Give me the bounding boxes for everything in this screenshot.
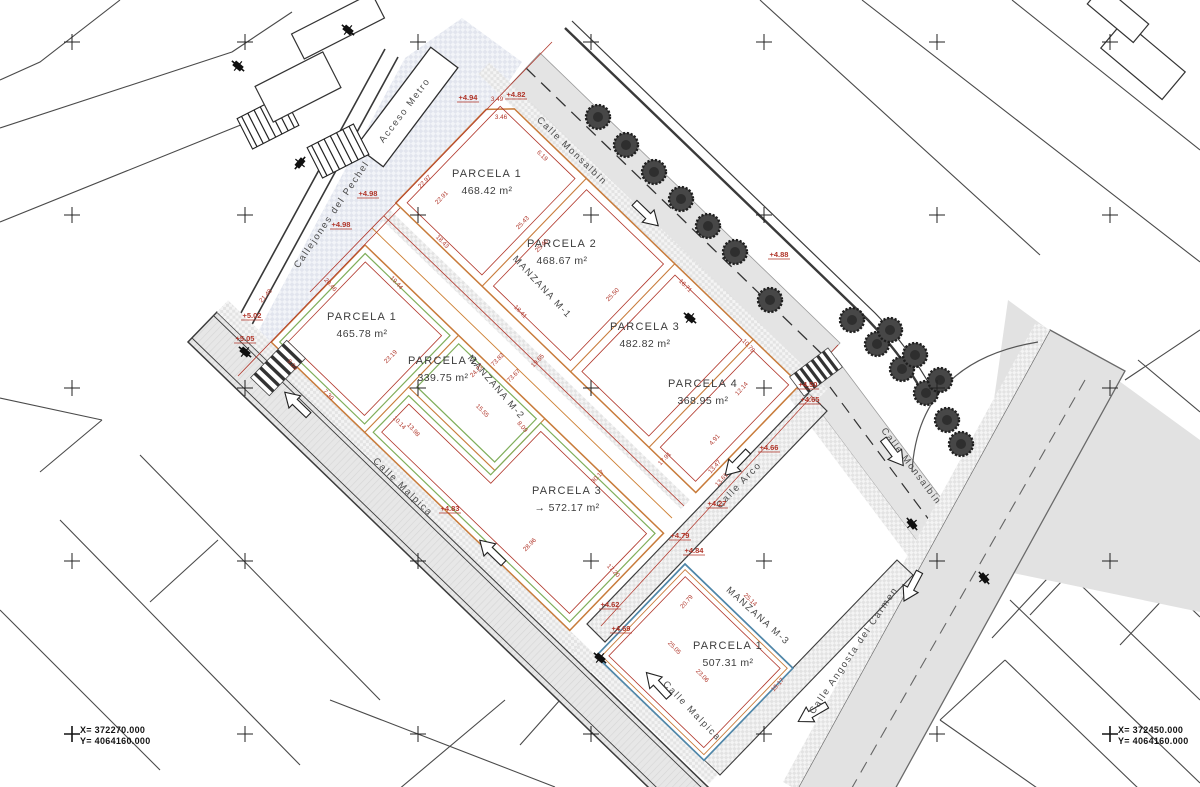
parcel-area-label: 339.75 m² xyxy=(418,372,469,384)
elevation-label: +4.82 xyxy=(507,90,526,99)
coordinate-x-label: X= 372270.000 xyxy=(80,725,145,735)
elevation-label: +4.50 xyxy=(799,380,818,389)
elevation-label: +4.83 xyxy=(441,504,460,513)
tree-icon xyxy=(696,214,720,238)
parcel-area-label: 468.67 m² xyxy=(537,255,588,267)
parcel-label: PARCELA 1 xyxy=(452,168,522,180)
tree-icon xyxy=(669,187,693,211)
tree-icon xyxy=(840,308,864,332)
plan-canvas: Calle MonsalbínCalle MonsalbínCalle Malp… xyxy=(0,0,1200,787)
site-plan-drawing: Calle MonsalbínCalle MonsalbínCalle Malp… xyxy=(0,0,1200,787)
coordinate-y-label: Y= 4064160.000 xyxy=(80,736,151,746)
elevation-label: +4.66 xyxy=(760,443,779,452)
elevation-label: +4.84 xyxy=(685,546,705,555)
parcel-label: PARCELA 1 xyxy=(327,311,397,323)
tree-icon xyxy=(949,432,973,456)
elevation-label: +4.27 xyxy=(708,499,727,508)
parcel-area-label: 468.42 m² xyxy=(462,185,513,197)
tree-icon xyxy=(758,288,782,312)
elevation-label: +4.94 xyxy=(459,93,479,102)
parcel-area-label: → 572.17 m² xyxy=(534,502,599,514)
elevation-label: +4.65 xyxy=(801,395,820,404)
tree-icon xyxy=(642,160,666,184)
parcel-area-label: 507.31 m² xyxy=(703,657,754,669)
tree-icon xyxy=(586,105,610,129)
dimension-label: 3.49 xyxy=(491,96,504,103)
elevation-label: +4.69 xyxy=(612,624,631,633)
parcel-area-label: 368.95 m² xyxy=(678,395,729,407)
parcel-label: PARCELA 2 xyxy=(408,355,478,367)
elevation-label: +4.98 xyxy=(332,220,351,229)
elevation-label: +4.62 xyxy=(601,600,620,609)
parcel-label: PARCELA 4 xyxy=(668,378,738,390)
elevation-label: +4.79 xyxy=(671,531,690,540)
tree-icon xyxy=(878,318,902,342)
elevation-label: +4.88 xyxy=(770,250,789,259)
elevation-label: +5.02 xyxy=(243,311,262,320)
tree-icon xyxy=(614,133,638,157)
dimension-label: 3.46 xyxy=(495,114,508,121)
elevation-label: +5.05 xyxy=(236,334,255,343)
parcel-label: PARCELA 3 xyxy=(532,485,602,497)
tree-icon xyxy=(723,240,747,264)
tree-icon xyxy=(935,408,959,432)
coordinate-y-label: Y= 4064160.000 xyxy=(1118,736,1189,746)
parcel-label: PARCELA 1 xyxy=(693,640,763,652)
parcel-area-label: 465.78 m² xyxy=(337,328,388,340)
parcel-label: PARCELA 3 xyxy=(610,321,680,333)
coordinate-x-label: X= 372450.000 xyxy=(1118,725,1183,735)
parcel-area-label: 482.82 m² xyxy=(620,338,671,350)
elevation-label: +4.98 xyxy=(359,189,378,198)
tree-icon xyxy=(903,343,927,367)
